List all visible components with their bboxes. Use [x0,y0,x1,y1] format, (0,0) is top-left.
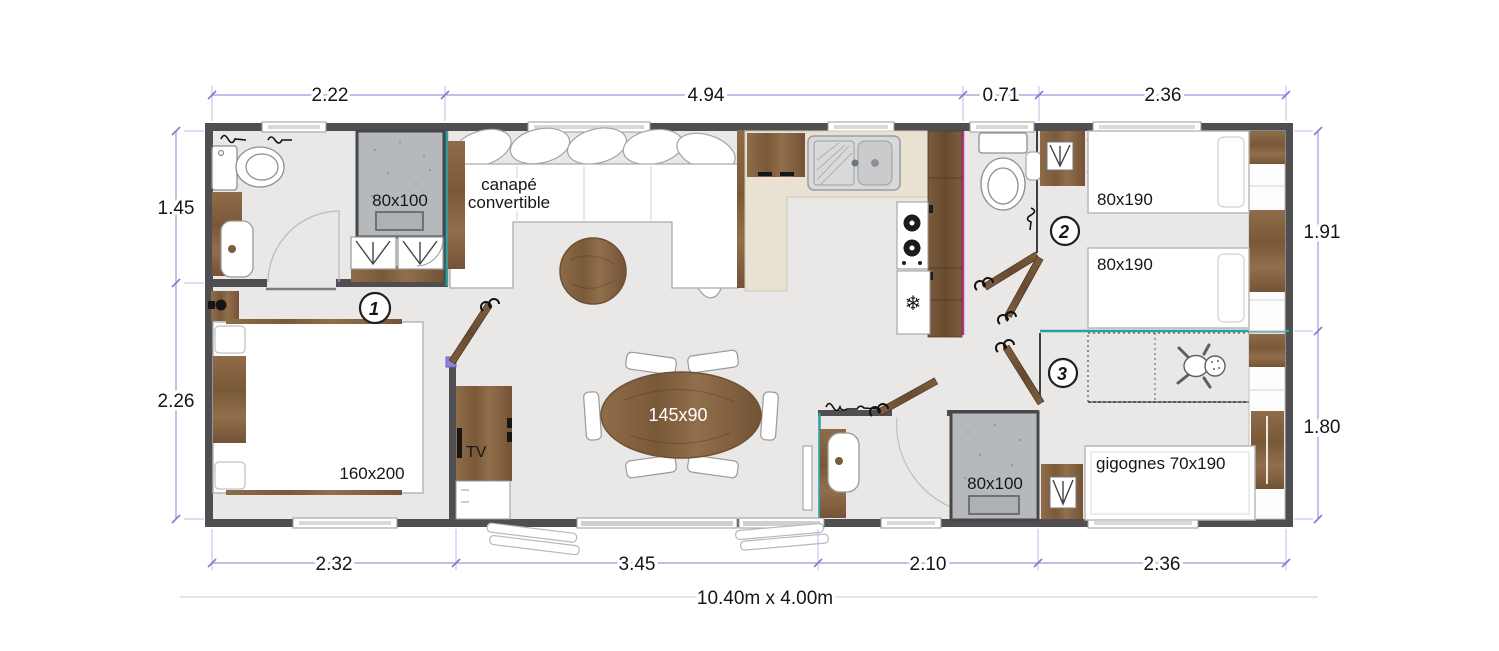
toilet [979,133,1027,210]
dim-left-2: 2.26 [158,391,195,412]
overall-size-label: 10.40m x 4.00m [697,588,833,609]
bed3-size-label: gigognes 70x190 [1096,454,1226,473]
kitchen-tall-units [928,131,962,337]
sink [221,221,253,277]
window [293,518,397,528]
faucet-icon [228,245,236,253]
cistern-box [1026,152,1041,180]
bedroom-1: 160x200 TV [213,299,512,519]
shower-tray [969,496,1019,514]
dim-top-4: 2.36 [1145,85,1182,106]
overall-size: 10.40m x 4.00m [180,588,1318,609]
trundle-beds: gigognes 70x190 [1085,446,1255,520]
towel-rail [803,446,812,510]
living-room: canapé convertible [448,122,746,304]
dim-bottom-2: 3.45 [619,554,656,575]
wall-bathroom1-bottom-left [209,279,267,287]
bed-160x200: 160x200 [213,319,423,495]
dim-top-2: 4.94 [688,85,725,106]
water-heater [208,291,239,321]
floor-plan-svg: 80x100 160x200 [0,0,1499,651]
window [881,518,941,528]
dim-bottom-3: 2.10 [910,554,947,575]
room-badge-1: 1 [360,293,390,323]
room-number: 2 [1058,222,1069,242]
bed1-size-label: 160x200 [339,464,404,483]
dim-top-3: 0.71 [983,85,1020,106]
bed-80x190-bottom: 80x190 [1088,248,1249,328]
wardrobe [1041,464,1083,519]
stove [897,202,928,269]
kitchen-sink [808,136,900,190]
dining-table: 145x90 [601,372,761,458]
chair [760,392,778,441]
sofa-side-panel [448,141,465,269]
room-number: 1 [369,299,379,319]
bed2a-size-label: 80x190 [1097,190,1153,209]
table-size-label: 145x90 [648,405,707,425]
room-badge-3: 3 [1049,359,1077,387]
dim-top-1: 2.22 [312,85,349,106]
toilet [212,146,284,190]
chair [583,392,601,441]
dim-left-1: 1.45 [158,198,195,219]
bed-80x190-top: 80x190 [1088,131,1249,213]
window [970,122,1034,132]
dim-right-1: 1.91 [1304,222,1341,243]
shower-2: 80x100 [951,412,1038,520]
cabinet [456,481,510,519]
shower1-size-label: 80x100 [372,191,428,210]
right-wall-shelving [1249,131,1285,331]
shower-1: 80x100 [357,131,444,237]
bed2b-size-label: 80x190 [1097,255,1153,274]
pillow [1218,137,1244,207]
dim-bottom-4: 2.36 [1144,554,1181,575]
room-badge-2: 2 [1051,217,1079,245]
tv-screen [457,428,462,458]
wall-bedroom1-right [449,360,456,523]
room-number: 3 [1057,364,1067,384]
tv-label: TV [466,444,487,461]
shower2-size-label: 80x100 [967,474,1023,493]
snowflake-icon: ❄ [905,293,922,315]
pillow [1218,254,1244,322]
fridge: ❄ [897,271,930,334]
kitchen-cabinet [747,133,805,177]
dim-bottom-1: 2.32 [316,554,353,575]
floor-plan-page: 80x100 160x200 [0,0,1499,651]
coffee-table [560,238,626,304]
window [262,122,326,132]
shower-tray [376,212,423,230]
pillow [215,326,245,353]
dim-right-2: 1.80 [1304,417,1341,438]
tv-unit: TV [456,386,512,519]
sink [828,433,859,492]
faucet-icon [835,457,843,465]
sliding-bay-door [577,518,737,528]
steps-left [485,523,581,555]
sofa-label-line2: convertible [468,193,550,212]
sofa-label-line1: canapé [481,175,537,194]
pillow [215,462,245,489]
headboard [213,356,246,443]
